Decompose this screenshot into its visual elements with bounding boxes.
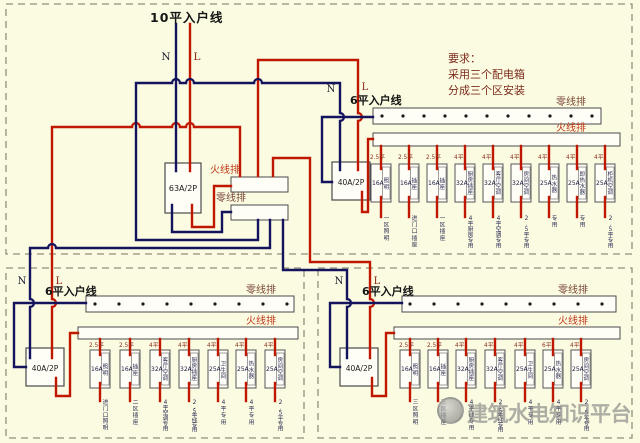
neutral-bus-label: 零线排 xyxy=(556,95,586,108)
breaker-wire-size: 4平 xyxy=(484,342,494,349)
breaker-circuit-label: 专用 xyxy=(552,214,558,229)
breaker-name: 厨房插座 xyxy=(467,171,473,196)
bus-terminal-dot xyxy=(600,302,603,305)
wiring-diagram-canvas: NL63A/2P火线排零线排NL6平入户线零线排火线排40A/2P16A2.5平… xyxy=(0,0,640,443)
bus-terminal-dot xyxy=(590,114,593,117)
breaker-wire-size: 4平 xyxy=(570,342,580,349)
bus-terminal-dot xyxy=(464,114,467,117)
breaker-circuit-label: 4平空调专用 xyxy=(496,216,502,250)
breaker-wire-size: 2.5平 xyxy=(427,342,442,349)
live-bus-label: 火线排 xyxy=(246,314,276,327)
breaker-circuit-label: 4平厨房专用 xyxy=(468,216,474,250)
breaker-name: 照明 xyxy=(412,364,418,377)
bus-terminal-dot xyxy=(117,302,120,305)
breaker-name: 热水器 xyxy=(555,359,561,380)
breaker-wire-size: 4平 xyxy=(538,154,548,161)
breaker-circuit-label: 二区插座 xyxy=(133,400,139,426)
live-bus-label: 火线排 xyxy=(556,121,586,134)
breaker-wire-size: 4平 xyxy=(455,342,465,349)
wiring-diagram-stage: NL63A/2P火线排零线排NL6平入户线零线排火线排40A/2P16A2.5平… xyxy=(0,0,640,443)
bus-terminal-dot xyxy=(548,114,551,117)
bus-terminal-dot xyxy=(93,302,96,305)
feeder-label-zone1: 6平入户线 xyxy=(350,93,402,107)
bus-terminal-dot xyxy=(141,302,144,305)
bus-terminal-dot xyxy=(480,302,483,305)
breaker-wire-size: 6平 xyxy=(542,342,552,349)
breaker-wire-size: 4平 xyxy=(235,342,245,349)
breaker-wire-size: 2.5平 xyxy=(119,342,134,349)
breaker-name: 照明 xyxy=(102,364,108,377)
breaker-circuit-label: 进门口照明 xyxy=(103,398,109,432)
breaker-name: 照明 xyxy=(383,178,389,191)
breaker-circuit-label: 4平空调专用 xyxy=(163,400,169,433)
breaker-name: 房间空调 xyxy=(523,170,529,196)
breaker-wire-size: 4平 xyxy=(510,154,520,161)
bus-terminal-dot xyxy=(401,114,404,117)
breaker-name: 插座 xyxy=(440,363,446,377)
breaker-wire-size: 4平 xyxy=(207,342,217,349)
breaker-name: 插座 xyxy=(439,177,445,191)
bus-terminal-dot xyxy=(422,114,425,117)
sub-n-label: N xyxy=(327,84,336,95)
neutral-bus-label: 零线排 xyxy=(558,283,588,296)
sub-main-breaker-rating: 40A/2P xyxy=(338,178,365,187)
breaker-circuit-label: 专用 xyxy=(580,214,586,229)
breaker-circuit-label: 进门口插座 xyxy=(412,214,418,248)
incoming-n-label: N xyxy=(161,51,170,63)
bus-terminal-dot xyxy=(485,114,488,117)
sub-main-breaker-rating: 40A/2P xyxy=(32,364,59,373)
requirements-heading: 要求： xyxy=(448,50,481,66)
breaker-circuit-label: 2.5平专用 xyxy=(608,216,614,250)
breaker-name: 卫生间 xyxy=(220,360,226,380)
bus-terminal-dot xyxy=(380,114,383,117)
bus-terminal-dot xyxy=(408,302,411,305)
breaker-wire-size: 4平 xyxy=(514,342,524,349)
main-live-bus-label: 火线排 xyxy=(210,163,240,176)
bus-terminal-dot xyxy=(456,302,459,305)
breaker-name: 客厅空调 xyxy=(495,170,501,196)
breaker-circuit-label: 2.5平专用 xyxy=(278,400,284,433)
bus-terminal-dot xyxy=(506,114,509,117)
bus-terminal-dot xyxy=(285,302,288,305)
bus-terminal-dot xyxy=(504,302,507,305)
breaker-wire-size: 4平 xyxy=(482,154,492,161)
breaker-circuit-label: 一区插座 xyxy=(440,216,446,242)
breaker-name: 房间空调 xyxy=(277,356,283,382)
breaker-name: 柜机空调 xyxy=(607,170,613,196)
feeder-label-zone3: 6平入户线 xyxy=(362,284,414,298)
breaker-circuit-label: 2.5平线专用 xyxy=(192,400,198,433)
feeder-label-zone2: 6平入户线 xyxy=(45,284,97,298)
main-neutral-bus-label: 零线排 xyxy=(216,191,246,204)
watermark-logo-icon xyxy=(437,397,464,424)
watermark-text: 建筑水电知识平台 xyxy=(467,398,631,428)
bus-terminal-dot xyxy=(213,302,216,305)
breaker-wire-size: 2.5平 xyxy=(398,154,413,161)
main-area-border xyxy=(6,4,632,254)
sub-n-label: N xyxy=(335,276,344,287)
breaker-name: 房间空调 xyxy=(583,356,589,382)
breaker-circuit-label: 4平专用 xyxy=(221,400,227,426)
live-feed-zone2 xyxy=(52,127,240,358)
breaker-name: 厨房插座 xyxy=(191,357,197,382)
breaker-name: 卫生间 xyxy=(527,360,533,380)
bus-terminal-dot xyxy=(237,302,240,305)
breaker-wire-size: 2.5平 xyxy=(370,154,385,161)
requirements-line-boxes: 采用三个配电箱 xyxy=(448,66,525,82)
breaker-wire-size: 4平 xyxy=(566,154,576,161)
sub-main-breaker-rating: 40A/2P xyxy=(346,364,373,373)
requirements-line-zones: 分成三个区安装 xyxy=(448,82,525,98)
neutral-bus-label: 零线排 xyxy=(246,283,276,296)
breaker-circuit-label: 4平专用 xyxy=(249,400,255,426)
bus-terminal-dot xyxy=(527,114,530,117)
main-live-busbar xyxy=(231,177,288,192)
sub-l-label: L xyxy=(362,82,369,93)
breaker-wire-size: 4平 xyxy=(594,154,604,161)
bus-terminal-dot xyxy=(528,302,531,305)
incoming-line-title: 10平入户线 xyxy=(150,7,223,26)
sub-n-label: N xyxy=(18,276,27,287)
breaker-wire-size: 4平 xyxy=(178,342,188,349)
breaker-name: 插座 xyxy=(411,177,417,191)
bus-terminal-dot xyxy=(189,302,192,305)
bus-terminal-dot xyxy=(552,302,555,305)
bus-terminal-dot xyxy=(432,302,435,305)
breaker-circuit-label: 2.5平专用 xyxy=(524,216,530,250)
breaker-name: 热水器 xyxy=(551,173,557,194)
breaker-name: 插座 xyxy=(132,363,138,377)
breaker-wire-size: 2.5平 xyxy=(399,342,414,349)
main-neutral-busbar xyxy=(231,205,288,220)
live-busbar-zone2 xyxy=(78,327,298,339)
incoming-l-label: L xyxy=(194,51,201,63)
breaker-wire-size: 4平 xyxy=(149,342,159,349)
breaker-circuit-label: 三区照明 xyxy=(413,399,419,426)
bus-terminal-dot xyxy=(165,302,168,305)
live-busbar-zone3 xyxy=(394,327,620,339)
breaker-wire-size: 4平 xyxy=(264,342,274,349)
live-busbar-zone1 xyxy=(373,133,620,146)
breaker-name: 厨房插座 xyxy=(468,357,474,382)
live-bus-label: 火线排 xyxy=(558,314,588,327)
main-breaker-rating: 63A/2P xyxy=(169,184,197,193)
breaker-wire-size: 2.5平 xyxy=(426,154,441,161)
bus-terminal-dot xyxy=(443,114,446,117)
breaker-wire-size: 2.5平 xyxy=(89,342,104,349)
bus-terminal-dot xyxy=(261,302,264,305)
breaker-circuit-label: 一区照明 xyxy=(384,216,390,242)
bus-terminal-dot xyxy=(576,302,579,305)
breaker-name: 热水器 xyxy=(248,359,254,380)
breaker-wire-size: 4平 xyxy=(454,154,464,161)
breaker-name: 客厅空调 xyxy=(497,356,503,382)
breaker-name: 客厅空调 xyxy=(162,356,168,382)
breaker-name: 即热水器 xyxy=(579,171,585,196)
bus-terminal-dot xyxy=(569,114,572,117)
